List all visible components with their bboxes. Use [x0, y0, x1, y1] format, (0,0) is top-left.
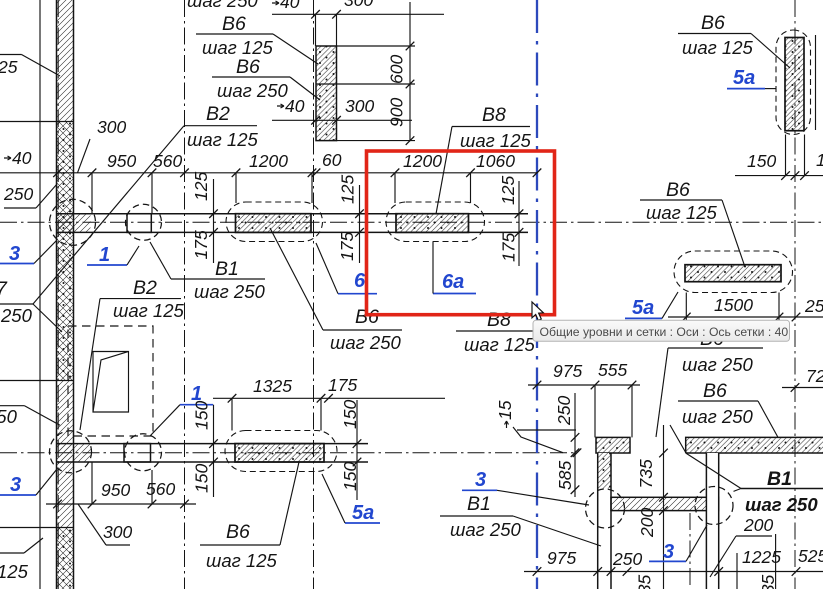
- svg-text:585: 585: [555, 461, 575, 490]
- svg-text:560: 560: [146, 479, 175, 499]
- svg-text:150: 150: [192, 464, 212, 493]
- svg-text:3: 3: [9, 243, 20, 265]
- svg-text:В6: В6: [666, 179, 690, 201]
- svg-text:175: 175: [337, 232, 357, 261]
- svg-text:1200: 1200: [403, 151, 442, 171]
- svg-text:шаг 250: шаг 250: [682, 354, 753, 375]
- svg-text:шаг 125: шаг 125: [682, 37, 753, 58]
- svg-text:шаг 250: шаг 250: [450, 519, 521, 540]
- svg-text:125: 125: [498, 176, 518, 205]
- svg-text:шаг 125: шаг 125: [187, 129, 258, 150]
- svg-text:150: 150: [816, 150, 823, 170]
- svg-text:Общие уровни и сетки : Оси : О: Общие уровни и сетки : Оси : Ось сетки :…: [540, 325, 789, 339]
- svg-text:125: 125: [338, 175, 358, 204]
- svg-text:3: 3: [475, 469, 486, 491]
- svg-text:1060: 1060: [476, 151, 515, 171]
- svg-text:шаг 250: шаг 250: [682, 406, 753, 427]
- svg-text:200: 200: [743, 515, 773, 535]
- svg-text:7: 7: [0, 278, 8, 300]
- svg-text:300: 300: [97, 117, 126, 137]
- svg-text:40: 40: [285, 96, 305, 116]
- svg-text:шаг 250: шаг 250: [187, 0, 258, 11]
- svg-text:250: 250: [554, 396, 574, 426]
- svg-text:175: 175: [191, 230, 211, 259]
- svg-text:250: 250: [3, 184, 33, 204]
- svg-text:125: 125: [0, 561, 29, 582]
- svg-text:175: 175: [499, 233, 519, 262]
- svg-text:В6: В6: [701, 12, 725, 34]
- svg-text:шаг 250: шаг 250: [330, 332, 401, 353]
- svg-text:555: 555: [598, 360, 627, 380]
- svg-text:В1: В1: [767, 468, 792, 490]
- svg-text:В6: В6: [226, 521, 250, 543]
- svg-text:В6: В6: [236, 56, 260, 78]
- svg-text:6: 6: [354, 270, 366, 292]
- svg-text:975: 975: [553, 361, 582, 381]
- svg-text:5а: 5а: [733, 67, 755, 89]
- svg-text:3: 3: [10, 474, 21, 496]
- svg-text:300: 300: [344, 0, 373, 10]
- svg-text:200: 200: [637, 508, 657, 538]
- svg-text:В8: В8: [487, 309, 511, 331]
- svg-text:В1: В1: [215, 258, 239, 280]
- svg-text:950: 950: [107, 151, 136, 171]
- svg-text:шаг 125: шаг 125: [646, 202, 717, 223]
- svg-text:525: 525: [798, 546, 823, 566]
- svg-text:975: 975: [547, 548, 576, 568]
- svg-text:шаг 125: шаг 125: [202, 37, 273, 58]
- svg-text:900: 900: [387, 98, 407, 127]
- svg-text:5а: 5а: [632, 297, 654, 319]
- svg-text:250: 250: [612, 549, 642, 569]
- svg-text:235: 235: [635, 575, 655, 589]
- svg-text:150: 150: [340, 400, 360, 429]
- svg-text:В8: В8: [482, 104, 506, 126]
- svg-text:6а: 6а: [442, 271, 464, 293]
- svg-text:шаг 250: шаг 250: [745, 494, 818, 515]
- svg-text:В2: В2: [133, 277, 157, 299]
- svg-text:1325: 1325: [253, 376, 292, 396]
- svg-text:150: 150: [747, 151, 776, 171]
- svg-text:300: 300: [345, 96, 374, 116]
- svg-text:250: 250: [804, 296, 823, 316]
- svg-text:40: 40: [280, 0, 300, 12]
- svg-text:235: 235: [758, 575, 778, 589]
- svg-text:шаг 250: шаг 250: [194, 281, 265, 302]
- svg-text:шаг 250: шаг 250: [217, 80, 288, 101]
- svg-text:60: 60: [322, 150, 342, 170]
- svg-text:1200: 1200: [249, 151, 288, 171]
- svg-text:250: 250: [0, 305, 33, 326]
- svg-text:шаг 125: шаг 125: [460, 130, 531, 151]
- svg-text:1500: 1500: [714, 295, 753, 315]
- svg-text:735: 735: [636, 459, 656, 488]
- svg-text:125: 125: [191, 172, 211, 201]
- svg-text:150: 150: [192, 401, 212, 430]
- svg-text:шаг 125: шаг 125: [464, 334, 535, 355]
- svg-text:В6: В6: [222, 13, 246, 35]
- svg-text:175: 175: [328, 375, 357, 395]
- svg-text:725: 725: [806, 366, 823, 386]
- svg-text:1: 1: [99, 244, 110, 266]
- svg-text:600: 600: [387, 55, 407, 84]
- svg-text:150: 150: [340, 462, 360, 491]
- svg-text:шаг 125: шаг 125: [206, 550, 277, 571]
- svg-text:5а: 5а: [352, 502, 374, 524]
- svg-text:950: 950: [101, 480, 130, 500]
- svg-text:В1: В1: [467, 493, 491, 515]
- svg-text:25: 25: [0, 57, 18, 77]
- svg-text:560: 560: [153, 151, 182, 171]
- svg-text:В6: В6: [703, 380, 727, 402]
- svg-text:250: 250: [0, 406, 18, 427]
- svg-text:3: 3: [663, 541, 674, 563]
- svg-text:40: 40: [12, 148, 32, 168]
- svg-text:В2: В2: [206, 103, 230, 125]
- svg-text:15: 15: [495, 400, 515, 420]
- svg-text:1225: 1225: [742, 547, 781, 567]
- svg-text:шаг 125: шаг 125: [113, 300, 184, 321]
- svg-text:300: 300: [103, 522, 132, 542]
